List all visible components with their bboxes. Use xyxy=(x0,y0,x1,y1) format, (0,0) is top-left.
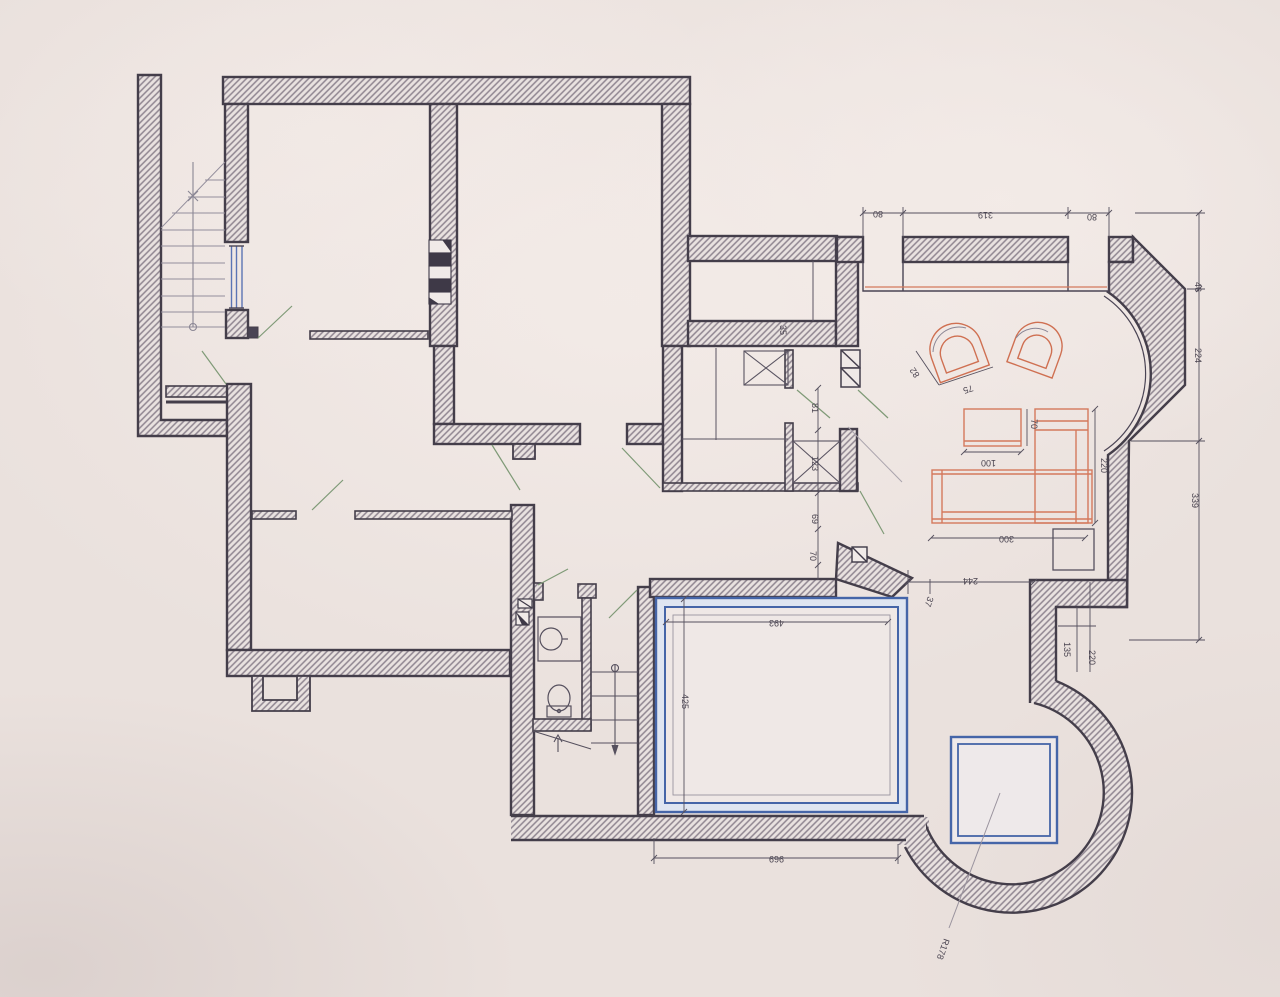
svg-text:35: 35 xyxy=(778,325,788,335)
svg-text:220: 220 xyxy=(1099,458,1109,473)
svg-text:69: 69 xyxy=(810,514,820,524)
svg-text:123: 123 xyxy=(810,456,820,471)
svg-text:425: 425 xyxy=(680,694,690,709)
svg-text:220: 220 xyxy=(1087,650,1097,665)
svg-text:81: 81 xyxy=(810,403,820,413)
svg-text:70: 70 xyxy=(808,551,818,561)
svg-text:70: 70 xyxy=(1029,419,1039,429)
svg-text:224: 224 xyxy=(1193,348,1203,363)
svg-text:135: 135 xyxy=(1062,642,1072,657)
svg-text:339: 339 xyxy=(1190,493,1200,508)
svg-text:493: 493 xyxy=(769,618,784,628)
svg-text:46: 46 xyxy=(1193,282,1203,292)
svg-text:100: 100 xyxy=(981,458,996,468)
svg-text:319: 319 xyxy=(978,210,993,220)
svg-text:969: 969 xyxy=(769,854,784,864)
svg-text:80: 80 xyxy=(873,209,883,219)
svg-text:244: 244 xyxy=(963,576,978,586)
svg-text:300: 300 xyxy=(999,534,1014,544)
svg-text:80: 80 xyxy=(1087,212,1097,222)
